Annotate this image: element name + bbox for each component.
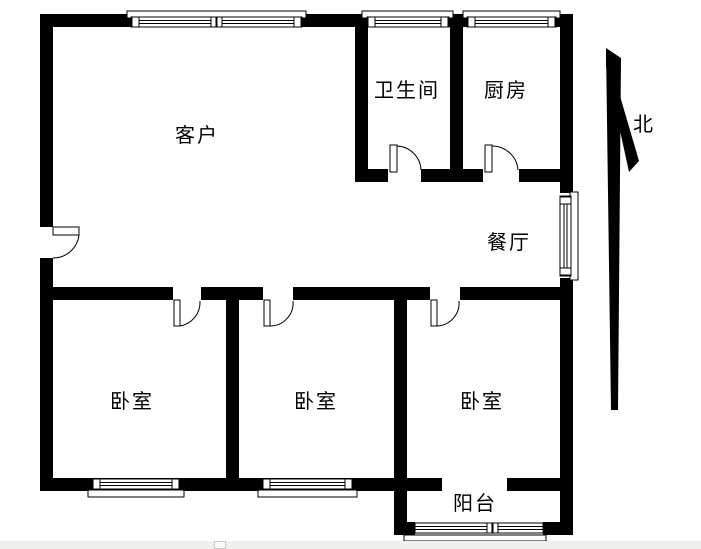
window-mullion [487, 523, 492, 533]
window-end-cap [345, 479, 352, 489]
window-frame [92, 479, 180, 489]
window-kitchen-top [463, 11, 560, 27]
window-bathroom-top [362, 11, 453, 27]
window-bedroom2-bottom [258, 479, 357, 497]
window-mullion [211, 17, 216, 27]
label-bedroom-left: 卧室 [110, 389, 154, 413]
wall-living-bathroom-divider [355, 14, 368, 182]
entry-door-opening [40, 227, 53, 258]
window-end-cap [560, 197, 571, 204]
balcony-passage-opening [442, 478, 507, 491]
window-end-cap [93, 479, 100, 489]
plan-background [0, 0, 701, 549]
label-bedroom-right: 卧室 [460, 389, 504, 413]
window-end-cap [294, 17, 301, 27]
wall-balcony-rail-end-right [543, 522, 560, 535]
window-living-top [127, 11, 306, 27]
window-frame [415, 523, 543, 533]
window-sill [88, 490, 184, 497]
wall-balcony-rail-end-left [405, 522, 415, 535]
window-end-cap [548, 17, 555, 27]
door-leaf [431, 300, 437, 326]
door-leaf [485, 145, 492, 172]
window-end-cap [172, 479, 179, 489]
label-north: 北 [633, 112, 655, 136]
window-mullion [217, 17, 222, 27]
window-end-cap [263, 479, 270, 489]
window-balcony-rail [404, 523, 546, 541]
door-leaf [174, 300, 180, 326]
bedroom2-door-opening [263, 287, 293, 300]
door-leaf [390, 145, 397, 172]
bedroom3-door-opening [430, 287, 460, 300]
floor-plan-canvas: 北 客户 卫生间 厨房 餐厅 卧室 卧室 卧室 阳台 [0, 0, 701, 549]
window-dining-right [560, 192, 578, 280]
window-frame [467, 17, 556, 27]
window-frame [367, 17, 449, 27]
wall-bottom-exterior-right [507, 478, 573, 491]
window-sill [404, 535, 546, 541]
door-leaf [53, 227, 79, 235]
label-bathroom: 卫生间 [374, 78, 440, 102]
window-mullion [493, 523, 498, 533]
bedroom1-door-opening [173, 287, 201, 300]
window-sill [258, 490, 357, 497]
window-end-cap [441, 17, 448, 27]
wall-middle-horizontal [40, 287, 573, 300]
window-end-cap [368, 17, 375, 27]
bottom-strip-widget [215, 542, 226, 549]
door-leaf [264, 300, 270, 326]
bottom-strip-background [0, 541, 701, 549]
label-dining-room: 餐厅 [487, 230, 531, 254]
bottom-strip [0, 541, 701, 549]
wall-bedroom2-bedroom3-divider [394, 287, 407, 535]
label-living-room: 客户 [175, 123, 219, 147]
wall-bathroom-kitchen-bottom [355, 169, 573, 182]
window-frame [560, 196, 571, 276]
window-frame [262, 479, 353, 489]
window-bedroom1-bottom [88, 479, 184, 497]
window-end-cap [560, 268, 571, 275]
label-balcony: 阳台 [453, 491, 497, 515]
window-end-cap [132, 17, 139, 27]
wall-bathroom-kitchen-divider [450, 14, 463, 182]
window-end-cap [468, 17, 475, 27]
label-kitchen: 厨房 [484, 78, 528, 102]
label-bedroom-middle: 卧室 [294, 389, 338, 413]
wall-bedroom1-bedroom2-divider [226, 287, 239, 491]
